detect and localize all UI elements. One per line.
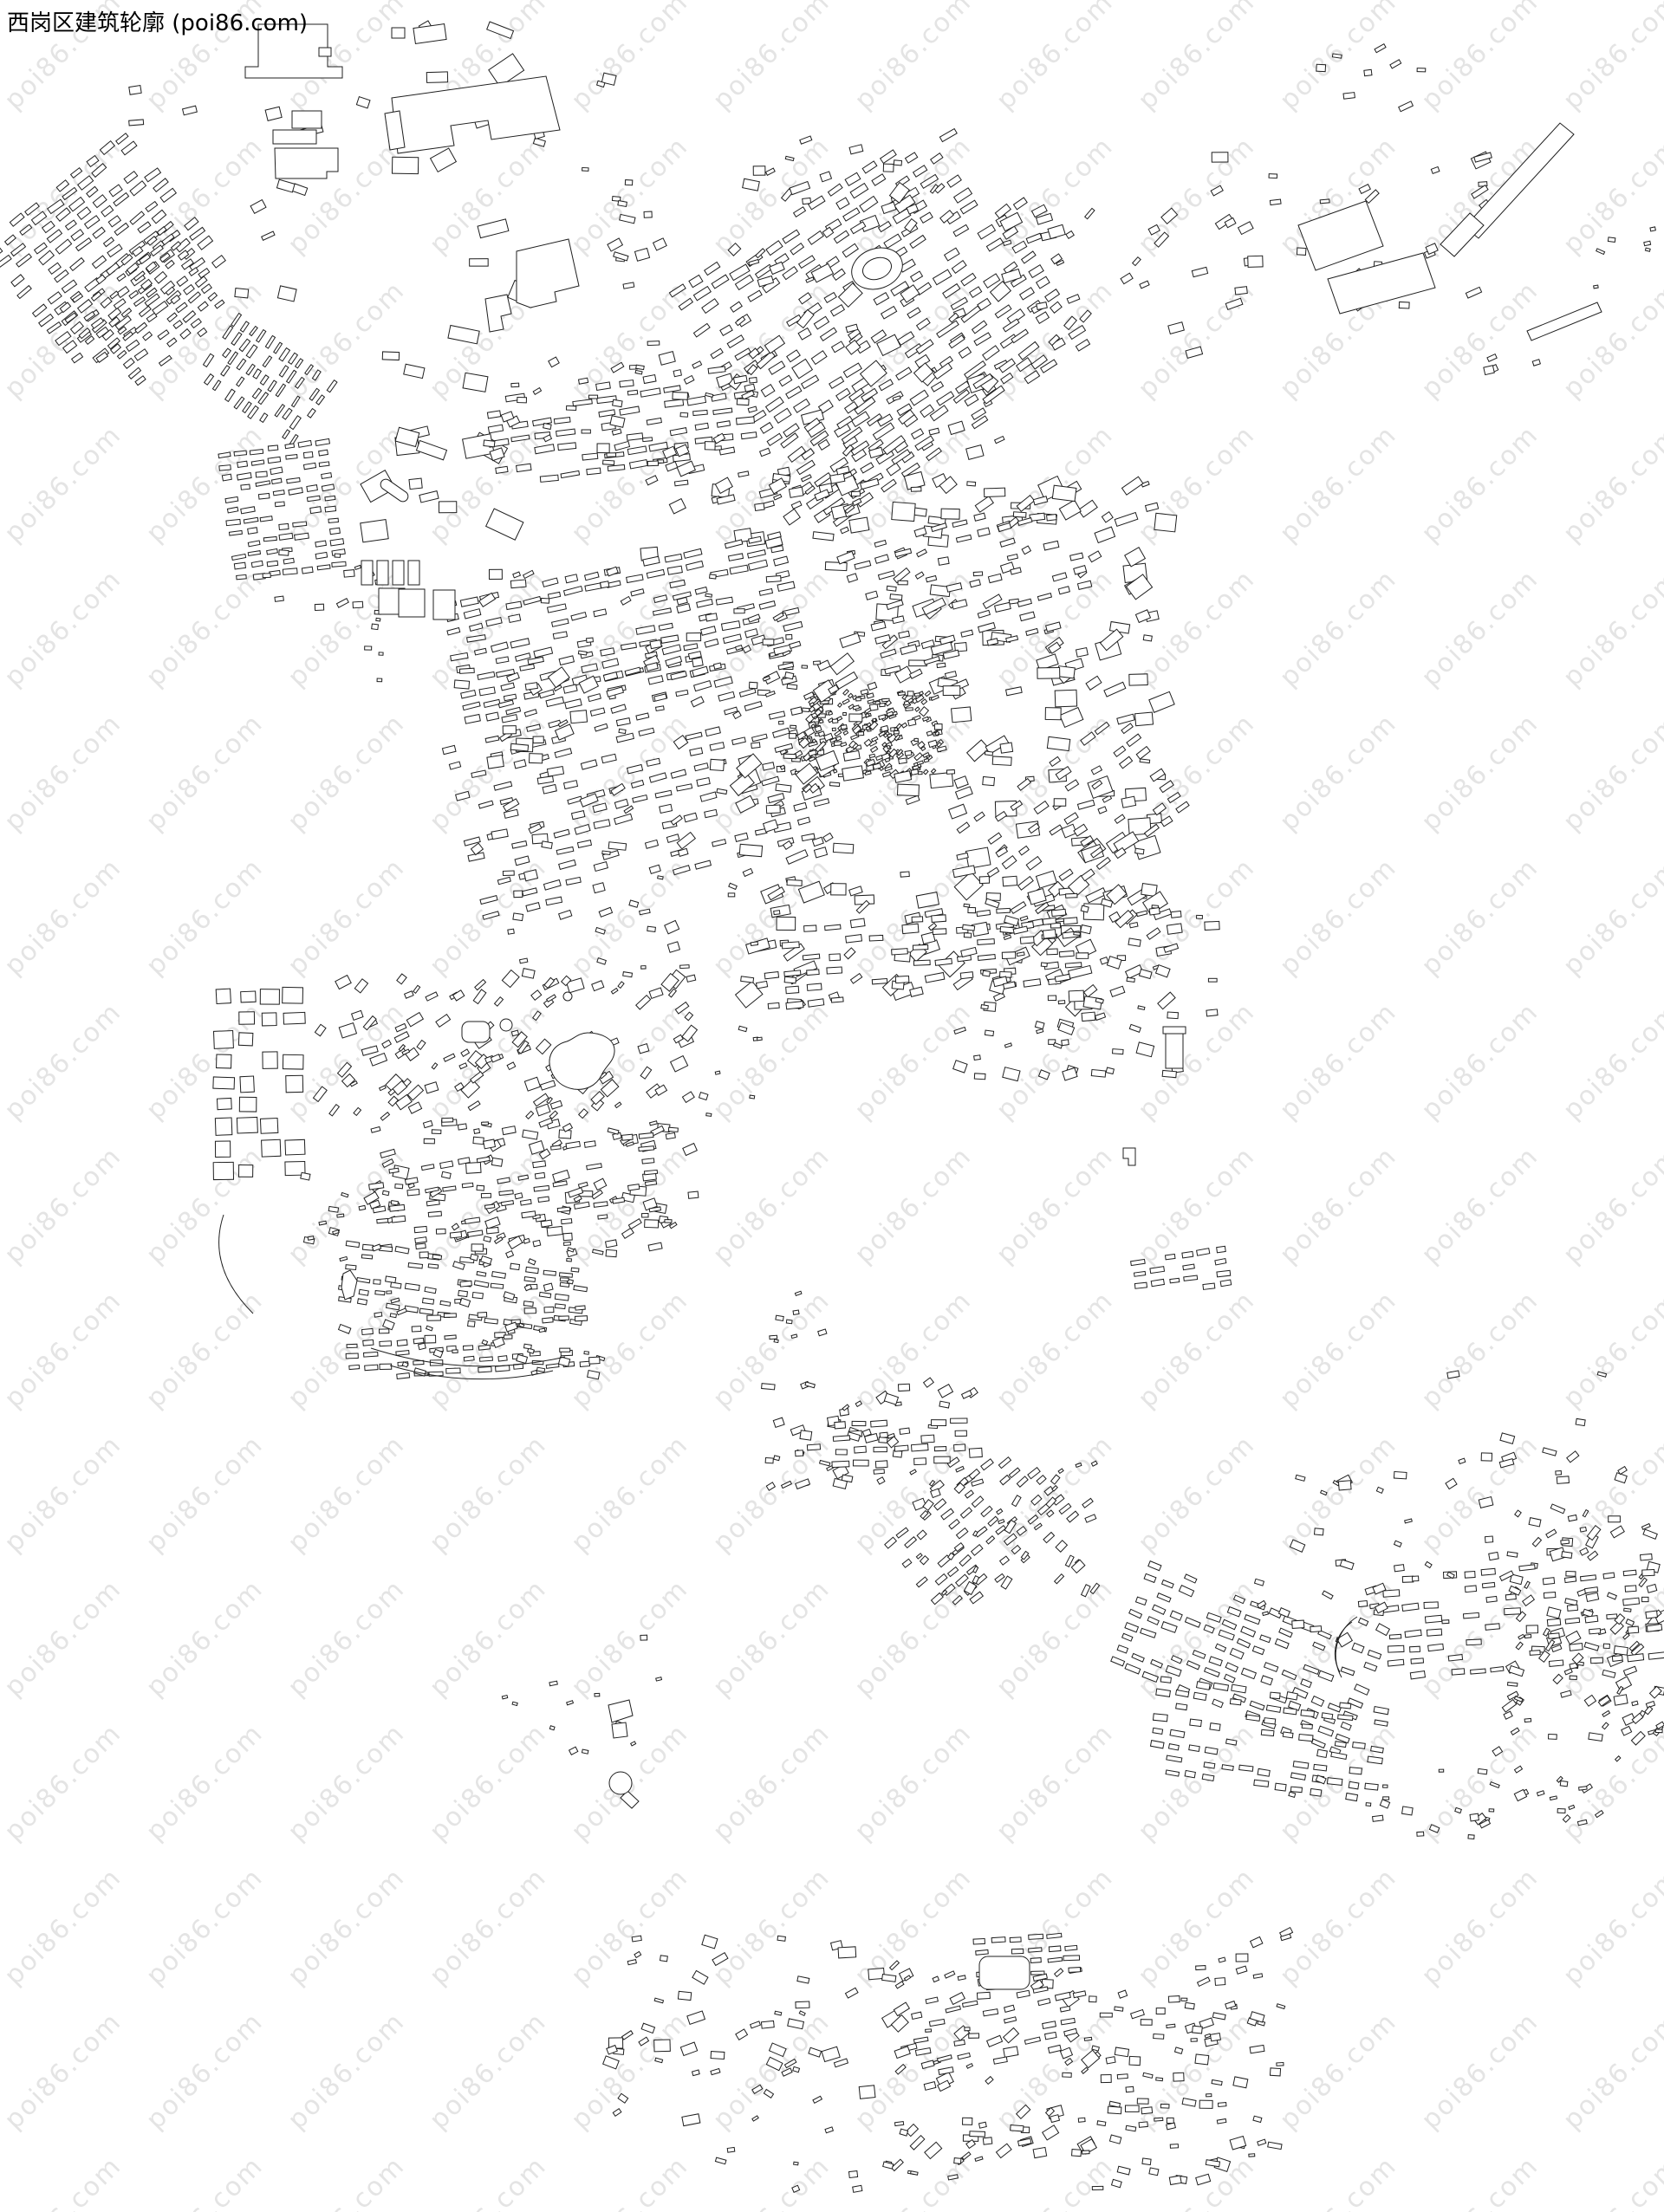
watermark-text: poi86.com xyxy=(424,1862,553,1991)
building xyxy=(996,847,1007,857)
building xyxy=(536,1039,551,1054)
building xyxy=(735,833,748,841)
building xyxy=(1129,2056,1141,2065)
building xyxy=(1131,1259,1146,1265)
building xyxy=(308,1236,314,1241)
building xyxy=(937,392,954,405)
building xyxy=(924,1378,934,1387)
building xyxy=(967,482,976,486)
building xyxy=(1564,1577,1576,1583)
building xyxy=(956,535,971,542)
building xyxy=(786,634,792,639)
building xyxy=(1489,1552,1498,1560)
building xyxy=(303,463,315,469)
building xyxy=(479,687,495,696)
building xyxy=(375,1291,385,1295)
building xyxy=(654,2040,671,2052)
building xyxy=(1066,231,1074,239)
building xyxy=(1500,1433,1515,1443)
building xyxy=(1128,938,1141,946)
building xyxy=(692,2070,700,2076)
building xyxy=(640,388,660,397)
watermark-text: poi86.com xyxy=(707,853,836,982)
building xyxy=(1314,1764,1327,1770)
building xyxy=(790,725,796,728)
building xyxy=(85,216,100,229)
building xyxy=(1394,1541,1402,1547)
building xyxy=(1530,1651,1540,1656)
building xyxy=(925,2142,942,2158)
building xyxy=(458,1124,466,1130)
building xyxy=(969,1469,979,1480)
building xyxy=(1092,2186,1103,2189)
building xyxy=(1017,599,1031,607)
building xyxy=(1269,174,1277,178)
landmark-hook-building xyxy=(341,1270,357,1300)
building xyxy=(1264,1718,1276,1724)
building xyxy=(1136,1042,1154,1057)
building xyxy=(1603,1644,1609,1648)
building xyxy=(1097,2121,1106,2126)
building xyxy=(825,2127,833,2133)
building xyxy=(234,562,245,569)
building xyxy=(1028,1468,1040,1479)
building xyxy=(251,561,263,567)
building xyxy=(1082,1012,1095,1021)
building xyxy=(1327,1778,1342,1786)
building xyxy=(217,1054,231,1068)
building xyxy=(910,390,928,405)
building xyxy=(934,1447,946,1451)
building xyxy=(1428,1644,1444,1651)
building xyxy=(1212,1699,1223,1708)
building xyxy=(1059,950,1074,957)
building xyxy=(720,325,732,335)
building xyxy=(117,351,126,360)
building xyxy=(1031,1971,1044,1975)
building xyxy=(1167,2118,1173,2123)
landmark-layer xyxy=(219,24,1602,1989)
building xyxy=(129,86,141,95)
building xyxy=(1102,512,1113,522)
building xyxy=(659,623,673,630)
building xyxy=(678,1991,691,2000)
building xyxy=(916,1554,922,1559)
building xyxy=(1311,1739,1325,1748)
building xyxy=(486,1227,498,1233)
building xyxy=(869,722,877,730)
building xyxy=(354,1107,361,1115)
building xyxy=(1170,2144,1178,2149)
building xyxy=(1136,911,1147,917)
building xyxy=(1170,1278,1180,1283)
building xyxy=(1197,1249,1210,1255)
building xyxy=(1024,2037,1040,2044)
building-cluster-fr-bits xyxy=(1594,227,1656,289)
building xyxy=(504,694,516,700)
building xyxy=(587,638,594,642)
building xyxy=(1255,1579,1264,1586)
building xyxy=(1290,1787,1302,1793)
building xyxy=(432,1063,438,1069)
building xyxy=(706,1113,712,1117)
building xyxy=(1065,963,1082,968)
building xyxy=(649,988,663,998)
building xyxy=(1297,248,1306,255)
landmark-stack-rect-a xyxy=(292,111,322,128)
building xyxy=(748,290,762,302)
building xyxy=(1230,1699,1241,1705)
building xyxy=(525,683,537,691)
building xyxy=(1174,2047,1182,2053)
building xyxy=(717,788,727,794)
building xyxy=(1318,1670,1334,1681)
building xyxy=(619,729,626,733)
building xyxy=(72,353,83,362)
building xyxy=(201,284,211,294)
building xyxy=(316,395,325,405)
building xyxy=(966,2064,972,2069)
building xyxy=(1037,276,1050,289)
building xyxy=(751,2021,761,2028)
building xyxy=(1232,1684,1246,1693)
building xyxy=(129,120,144,126)
building xyxy=(1196,1966,1206,1970)
building xyxy=(748,550,766,558)
building xyxy=(462,1183,473,1188)
building xyxy=(1133,257,1141,266)
building xyxy=(173,321,182,328)
building xyxy=(1054,799,1066,806)
building xyxy=(656,706,665,711)
building xyxy=(794,2162,798,2165)
building xyxy=(354,979,367,993)
building xyxy=(329,1105,340,1116)
building xyxy=(380,1112,389,1120)
building xyxy=(611,989,618,995)
building xyxy=(914,738,918,741)
building xyxy=(963,924,975,931)
building xyxy=(743,868,752,876)
watermark-text: poi86.com xyxy=(991,1718,1120,1847)
building xyxy=(237,574,247,579)
building xyxy=(1399,302,1409,308)
building xyxy=(205,374,214,386)
watermark-text: poi86.com xyxy=(140,564,270,693)
building xyxy=(1084,2037,1092,2040)
building xyxy=(766,805,780,814)
building xyxy=(954,188,972,203)
building xyxy=(957,822,969,833)
building xyxy=(1380,1800,1389,1808)
building xyxy=(478,1345,490,1350)
building xyxy=(289,488,302,495)
building xyxy=(648,676,663,684)
building xyxy=(941,1508,953,1520)
building xyxy=(811,263,833,282)
building xyxy=(412,1327,421,1332)
building xyxy=(907,691,913,696)
building xyxy=(680,412,688,417)
building xyxy=(983,776,995,785)
building xyxy=(650,640,661,649)
building xyxy=(793,2066,800,2072)
building xyxy=(755,503,764,511)
building xyxy=(327,380,337,392)
building xyxy=(315,604,323,610)
building xyxy=(960,972,973,979)
building xyxy=(582,453,598,460)
building xyxy=(1589,1733,1602,1742)
building xyxy=(134,349,147,360)
building xyxy=(659,352,675,366)
building xyxy=(921,699,926,704)
building xyxy=(874,1447,887,1451)
building xyxy=(588,694,601,702)
building xyxy=(1114,746,1126,756)
building xyxy=(167,313,177,321)
building xyxy=(851,412,869,426)
building xyxy=(1650,227,1655,231)
building xyxy=(887,745,890,749)
building xyxy=(575,1306,585,1310)
building xyxy=(1081,924,1092,933)
building xyxy=(1143,635,1152,641)
building xyxy=(1514,1696,1522,1702)
building xyxy=(428,1211,441,1216)
building xyxy=(585,583,601,591)
building xyxy=(832,728,835,730)
building xyxy=(534,1185,549,1191)
building xyxy=(461,691,476,698)
building xyxy=(869,754,874,757)
watermark-text: poi86.com xyxy=(424,1430,553,1559)
building xyxy=(543,1270,556,1275)
building xyxy=(1002,952,1016,959)
building xyxy=(660,1956,668,1962)
building xyxy=(602,851,610,854)
building xyxy=(655,790,672,798)
building xyxy=(1561,1540,1570,1544)
building xyxy=(425,1287,436,1293)
building xyxy=(508,929,514,934)
building xyxy=(1241,1668,1256,1678)
building xyxy=(1078,500,1097,517)
building xyxy=(642,1158,654,1164)
building xyxy=(240,1076,254,1093)
building xyxy=(1118,1990,1127,1998)
building xyxy=(661,635,679,643)
building xyxy=(728,893,735,897)
building xyxy=(1220,1280,1232,1287)
building xyxy=(832,341,845,353)
building xyxy=(537,776,553,784)
building xyxy=(510,639,530,648)
building xyxy=(1405,1519,1413,1523)
watermark-text: poi86.com xyxy=(0,1430,127,1559)
building xyxy=(768,1002,779,1009)
building xyxy=(1332,54,1342,58)
building xyxy=(949,1520,959,1529)
building xyxy=(507,1062,516,1070)
building xyxy=(850,974,861,983)
building xyxy=(1029,1934,1043,1939)
building xyxy=(492,1272,506,1279)
building xyxy=(715,1071,720,1074)
building xyxy=(843,690,848,696)
building xyxy=(918,772,922,775)
building xyxy=(996,2144,1011,2157)
building xyxy=(702,1935,718,1949)
building xyxy=(515,1193,523,1199)
building xyxy=(256,471,267,477)
building xyxy=(1184,1275,1198,1281)
building xyxy=(372,624,379,630)
building xyxy=(1024,979,1041,987)
building xyxy=(914,1458,926,1465)
building xyxy=(705,727,720,736)
building xyxy=(932,1420,946,1426)
building xyxy=(684,375,694,384)
building xyxy=(145,168,161,182)
building xyxy=(974,812,985,821)
building xyxy=(930,772,953,788)
building xyxy=(1560,1781,1568,1786)
building xyxy=(71,230,83,241)
building xyxy=(929,428,939,435)
building xyxy=(1353,1742,1366,1749)
landmark-small-top-1 xyxy=(392,28,405,38)
building xyxy=(601,581,609,588)
building xyxy=(667,942,679,952)
building xyxy=(275,596,283,601)
building xyxy=(283,987,303,1003)
building xyxy=(1263,1612,1269,1616)
building xyxy=(960,200,978,214)
building xyxy=(705,639,718,647)
building xyxy=(776,784,791,793)
building xyxy=(859,2086,875,2099)
building xyxy=(510,580,526,588)
building xyxy=(486,712,499,721)
watermark-text: poi86.com xyxy=(707,1718,836,1847)
building xyxy=(756,981,767,988)
building xyxy=(250,200,266,214)
building xyxy=(1249,2154,1255,2157)
building xyxy=(1225,1663,1238,1672)
building xyxy=(892,502,915,521)
building xyxy=(1225,1674,1236,1683)
building xyxy=(897,784,919,796)
building xyxy=(542,841,552,849)
watermark-text: poi86.com xyxy=(565,1285,694,1414)
building xyxy=(1639,1578,1647,1586)
building xyxy=(995,305,1011,318)
building xyxy=(1038,1999,1050,2006)
building xyxy=(777,917,796,930)
building xyxy=(887,586,896,591)
building xyxy=(835,730,842,736)
building xyxy=(1167,2123,1176,2130)
building xyxy=(612,429,621,435)
building xyxy=(1610,1526,1624,1538)
building xyxy=(419,491,439,503)
building xyxy=(786,986,799,994)
building xyxy=(1078,2118,1085,2122)
building xyxy=(622,2031,634,2040)
building xyxy=(376,618,380,621)
building xyxy=(1609,1516,1621,1522)
building xyxy=(1002,856,1016,869)
building xyxy=(285,1139,305,1155)
building xyxy=(569,1747,578,1755)
building xyxy=(631,1742,636,1746)
building xyxy=(1131,2010,1145,2019)
building xyxy=(1168,1996,1180,2003)
building xyxy=(741,976,754,983)
building xyxy=(677,833,695,849)
watermark-text: poi86.com xyxy=(1415,708,1544,837)
building xyxy=(263,574,270,578)
watermark-text: poi86.com xyxy=(1132,276,1261,405)
building xyxy=(965,2027,970,2031)
building xyxy=(363,1340,374,1346)
building xyxy=(1402,1603,1419,1611)
building xyxy=(560,1348,570,1352)
building xyxy=(913,960,930,965)
building xyxy=(382,352,399,360)
building xyxy=(127,340,140,351)
building xyxy=(121,308,131,317)
watermark-text: poi86.com xyxy=(991,1141,1120,1270)
building xyxy=(1204,1762,1215,1768)
building xyxy=(1022,251,1036,263)
building xyxy=(555,749,572,758)
building xyxy=(970,2131,985,2137)
building xyxy=(530,754,543,763)
watermark-text: poi86.com xyxy=(1274,1141,1403,1270)
building xyxy=(692,361,702,368)
building xyxy=(798,817,810,825)
building xyxy=(484,1139,496,1149)
building xyxy=(1252,1646,1264,1655)
building xyxy=(623,972,633,977)
building xyxy=(1162,1580,1174,1588)
building xyxy=(382,1190,388,1195)
building xyxy=(1121,796,1136,808)
building xyxy=(407,1085,423,1100)
building xyxy=(371,1126,380,1132)
building xyxy=(1526,1625,1537,1633)
building xyxy=(121,141,137,155)
building xyxy=(577,840,591,848)
landmark-tower-cap xyxy=(1163,1027,1186,1034)
building xyxy=(691,697,704,707)
building xyxy=(1064,813,1078,824)
building xyxy=(1302,1724,1312,1729)
building xyxy=(426,992,438,1001)
building xyxy=(762,1384,775,1390)
building xyxy=(920,691,924,695)
building xyxy=(514,891,523,898)
building xyxy=(838,703,842,707)
building xyxy=(337,1214,344,1217)
building xyxy=(524,1077,540,1091)
building xyxy=(1532,1538,1541,1547)
building xyxy=(1082,2150,1089,2154)
building xyxy=(1121,723,1133,734)
building xyxy=(808,231,823,245)
